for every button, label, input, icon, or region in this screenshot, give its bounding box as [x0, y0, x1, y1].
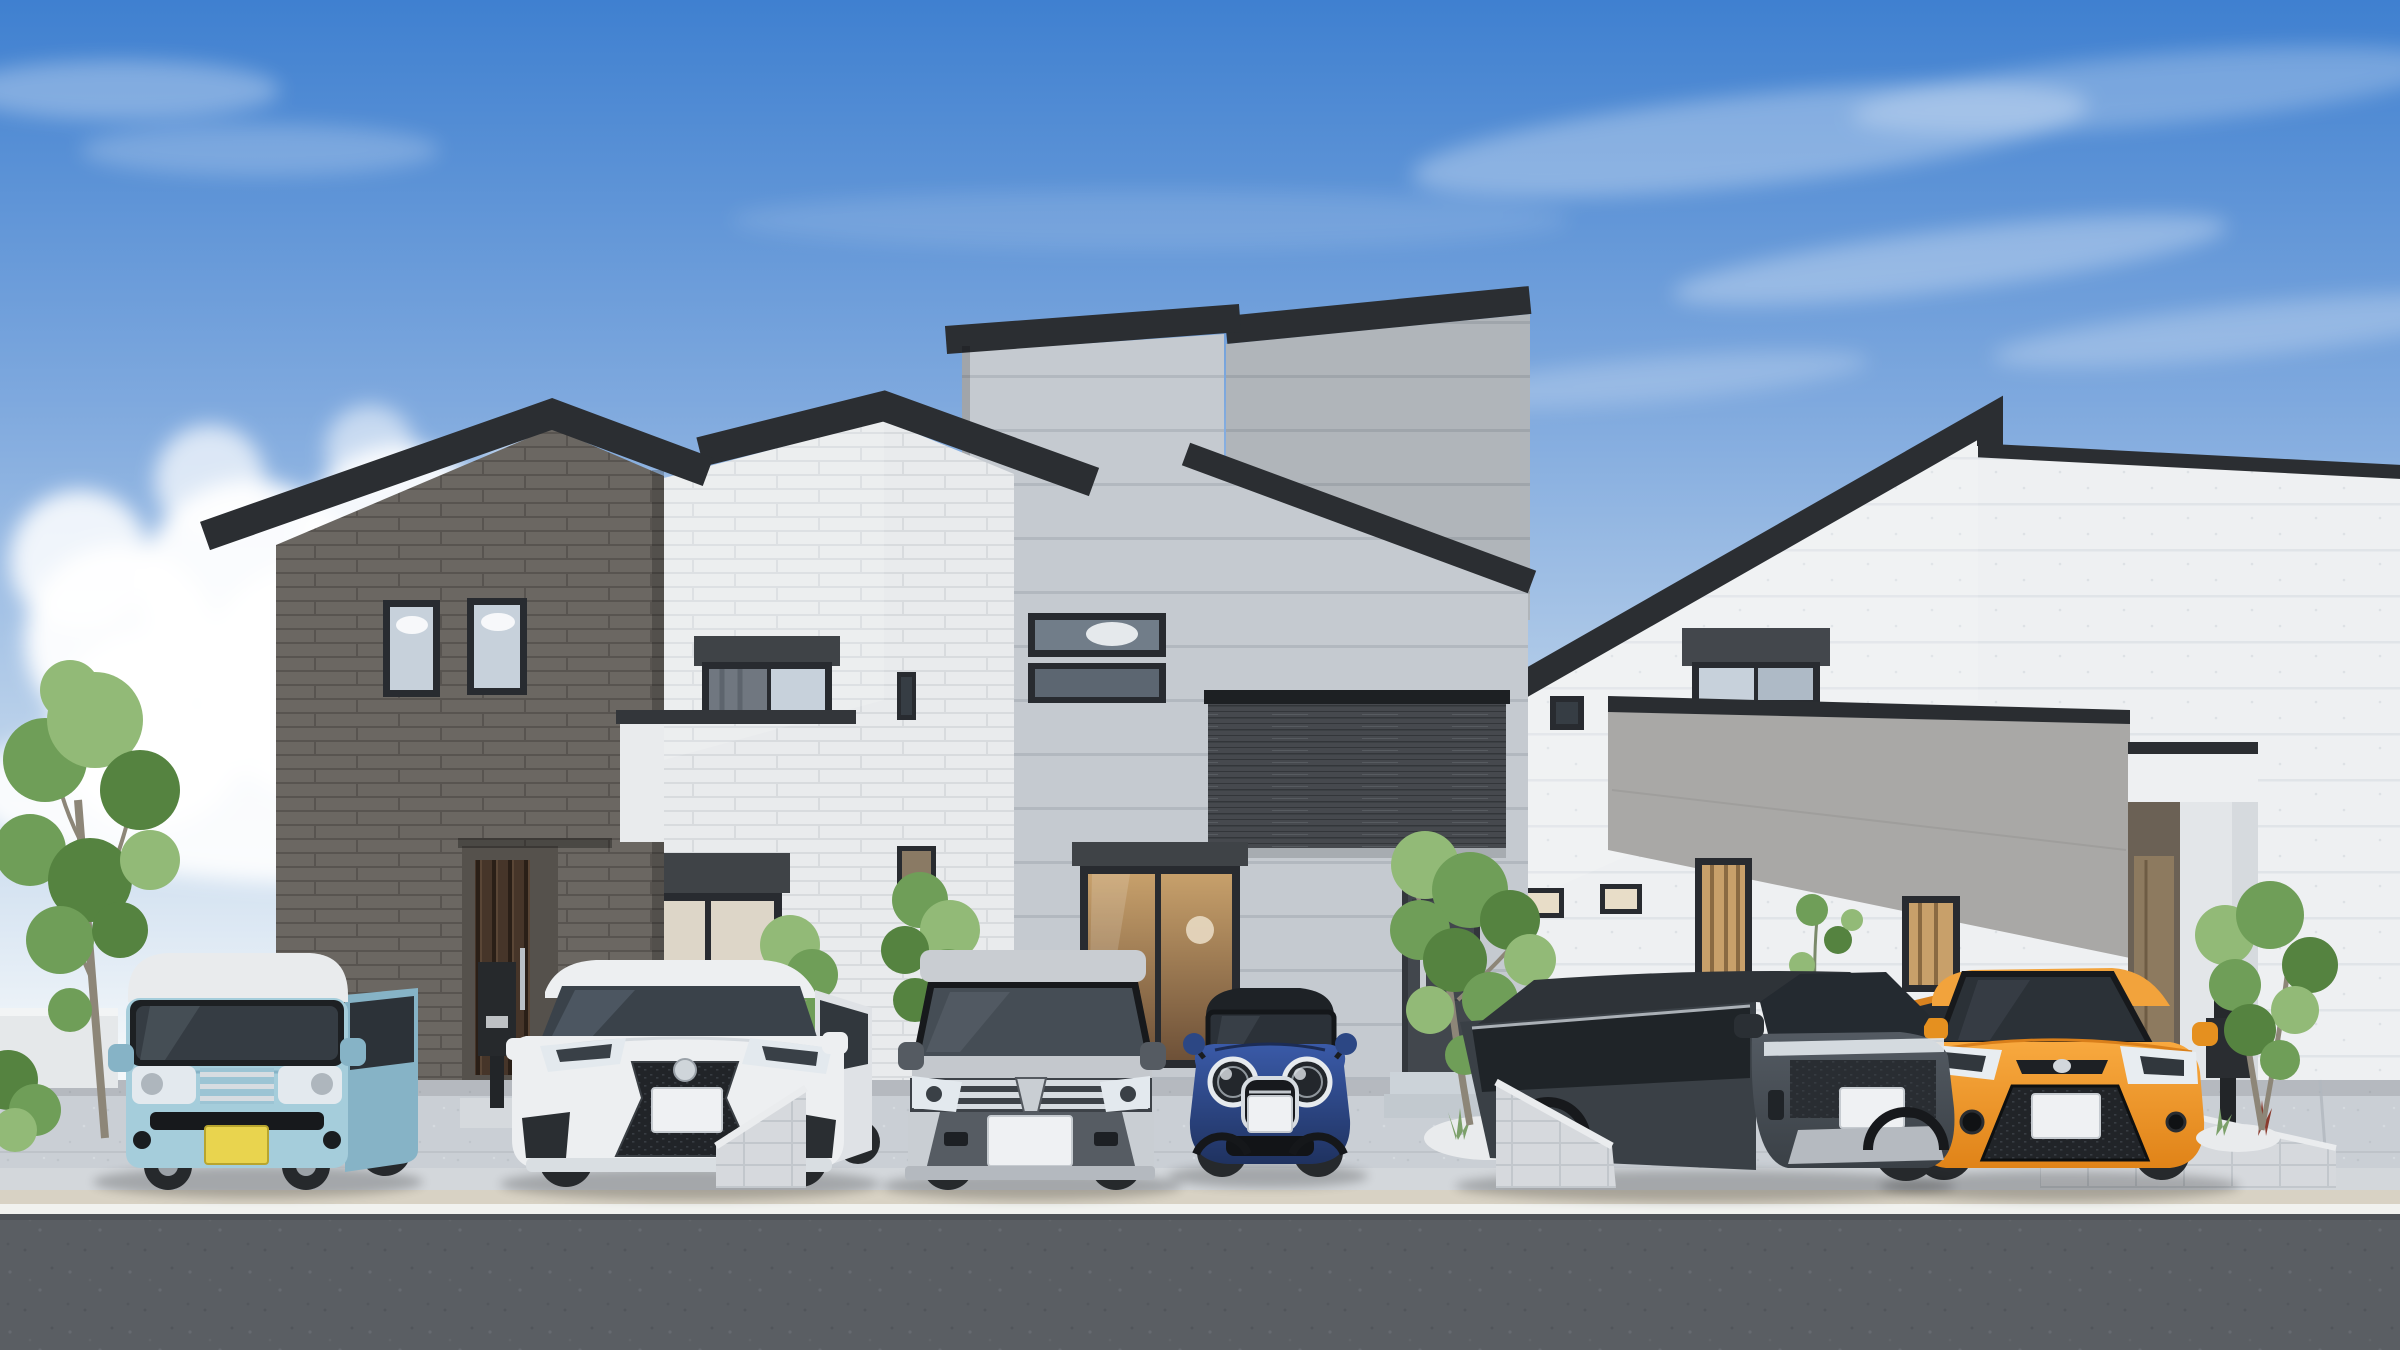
brand-emblem: [2053, 1059, 2071, 1073]
license-plate-yellow: [205, 1126, 268, 1164]
window-cloud-reflection: [396, 616, 428, 634]
side-mirror: [108, 1044, 134, 1072]
side-mirror: [506, 1038, 532, 1060]
slit-window-glass: [901, 677, 912, 715]
fog-light: [1961, 1111, 1983, 1133]
side-mirror: [898, 1042, 924, 1070]
license-plate: [1840, 1088, 1904, 1128]
balcony-band-coping: [1204, 690, 1510, 704]
entry-canopy-shade: [458, 838, 612, 848]
upper-window-sky-glass: [771, 669, 825, 717]
grille-bar: [200, 1084, 274, 1089]
asphalt-texture: [0, 1214, 2400, 1350]
headlight-bulb: [141, 1073, 163, 1095]
headlight-bulb: [311, 1073, 333, 1095]
upper-window-header: [694, 636, 840, 666]
parapet-left-return: [620, 724, 664, 842]
ceiling-light-reflection: [1086, 622, 1138, 646]
car-white-suv: [500, 960, 880, 1200]
small-upper-window-glass: [1556, 702, 1578, 724]
window-cloud-reflection: [481, 613, 515, 631]
hood: [912, 1056, 1152, 1080]
side-mirror: [1140, 1042, 1166, 1070]
car-minivan: [882, 950, 1182, 1200]
slider-mullion: [1155, 874, 1161, 1060]
car-shadow: [1168, 1164, 1368, 1188]
bumper-lip: [905, 1166, 1155, 1180]
upper-window-glass: [1758, 668, 1813, 700]
fog-slot: [1768, 1090, 1784, 1120]
grille-bar: [200, 1072, 274, 1077]
upper-window-glass: [1699, 668, 1754, 700]
asphalt-edge-shade: [0, 1214, 2400, 1220]
road-edge-line: [0, 1204, 2400, 1214]
side-mirror: [1183, 1033, 1205, 1055]
interior-lamp: [1186, 916, 1214, 944]
parapet-coping: [616, 710, 856, 724]
side-mirror: [1335, 1033, 1357, 1055]
intercom-slot: [486, 1016, 508, 1028]
license-plate: [988, 1116, 1072, 1166]
license-plate: [2032, 1094, 2100, 1138]
fog-light: [1094, 1132, 1118, 1146]
upper-window-header: [1682, 628, 1830, 666]
van-roof: [128, 953, 348, 1002]
license-plate: [652, 1088, 722, 1132]
grille-bar: [200, 1096, 274, 1101]
balcony-wood-band: [1208, 704, 1506, 848]
side-mirror: [340, 1038, 366, 1066]
headlight-glint: [1294, 1068, 1306, 1080]
porch-canopy-coping: [2128, 742, 2258, 754]
entry-canopy: [458, 782, 612, 846]
side-mirror: [822, 1032, 848, 1054]
fog-light: [944, 1132, 968, 1146]
projector: [926, 1086, 942, 1102]
fog-light: [323, 1131, 341, 1149]
side-mirror: [1924, 1018, 1948, 1040]
slit-window-glass: [1035, 669, 1159, 697]
post-pole: [490, 1056, 504, 1108]
license-plate: [1248, 1096, 1292, 1132]
door-handle: [520, 948, 525, 1010]
van-roof: [920, 950, 1146, 982]
headlight-glint: [1220, 1068, 1232, 1080]
slat-window-glass: [1909, 903, 1953, 985]
corner-intake: [522, 1112, 570, 1158]
side-mirror: [2192, 1022, 2218, 1046]
architectural-rendering: [0, 0, 2400, 1350]
slit-window-glass: [1605, 889, 1637, 909]
entry-step-lower: [1384, 1094, 1488, 1118]
projector: [1120, 1086, 1136, 1102]
slider-header: [1072, 842, 1248, 866]
side-mirror: [1734, 1014, 1764, 1038]
fog-light: [2167, 1113, 2185, 1131]
fog-light: [133, 1131, 151, 1149]
porch-canopy: [2128, 754, 2258, 802]
brand-emblem: [674, 1059, 696, 1081]
